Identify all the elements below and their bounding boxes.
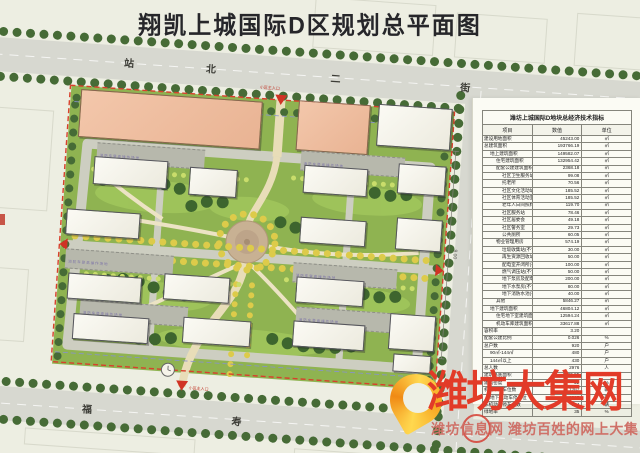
table-row: 社区体育活动室185.52㎡: [483, 195, 632, 202]
row-item: 地下泵房及配电站(不计容): [483, 276, 533, 283]
row-value: 60.05: [532, 232, 582, 239]
table-row: 老年人日间照料中心119.70㎡: [483, 202, 632, 209]
row-item: 建设用地面积: [483, 136, 533, 143]
row-value: 200.00: [532, 276, 582, 283]
building: [392, 353, 431, 374]
row-unit: ㎡: [582, 298, 632, 305]
row-value: 100.00: [532, 261, 582, 268]
row-item: 地下消防水池(不计容): [483, 291, 533, 298]
row-item: 物业管理用房: [483, 239, 533, 246]
row-value: 50.00: [532, 269, 582, 276]
row-unit: ㎡: [582, 276, 632, 283]
red-edge-mark: [0, 214, 5, 225]
row-value: 185.52: [532, 187, 582, 194]
row-item: 地下建筑面积: [483, 305, 533, 312]
row-unit: ㎡: [582, 313, 632, 320]
building: [303, 165, 369, 197]
table-row: 社区文化活动站185.52㎡: [483, 187, 632, 194]
row-unit: ㎡: [582, 202, 632, 209]
row-value: 50.00: [532, 254, 582, 261]
row-value: 5846.27: [532, 298, 582, 305]
street-name-char: 北: [206, 60, 217, 76]
table-title: 潍坊上城国际D地块总经济技术指标: [483, 111, 632, 125]
row-value: 29.73: [532, 224, 582, 231]
row-item: 老年人日间照料中心: [483, 202, 533, 209]
row-unit: ㎡: [582, 239, 632, 246]
indicator-table-head: 潍坊上城国际D地块总经济技术指标 项目 数值 单位: [483, 111, 632, 136]
building: [188, 167, 238, 198]
table-row: 垃圾收集站(不计容)30.00㎡: [483, 246, 632, 253]
street-name-char: 寿: [231, 413, 242, 429]
street-name-char: 站: [124, 54, 135, 70]
row-unit: ㎡: [582, 172, 632, 179]
building: [65, 208, 141, 239]
row-unit: ㎡: [582, 254, 632, 261]
street-name-char: 二: [330, 70, 341, 86]
row-unit: ㎡: [582, 136, 632, 143]
table-row: 容积率3.20: [483, 328, 632, 335]
row-unit: ㎡: [582, 165, 632, 172]
building: [163, 273, 231, 304]
table-row: 再生资源回收站(不计容)50.00㎡: [483, 254, 632, 261]
table-row: 燃气调压站(不计容)50.00㎡: [483, 269, 632, 276]
entry-axis-path: [277, 99, 281, 157]
row-item: 住宅地下室建筑面积: [483, 313, 533, 320]
table-row: 144㎡以上430户: [483, 357, 632, 364]
row-item: 144㎡以上: [483, 357, 533, 364]
row-item: 总户数: [483, 342, 533, 349]
row-unit: ㎡: [582, 150, 632, 157]
table-row: 公共厕所60.05㎡: [483, 232, 632, 239]
table-row: 托老所70.56㎡: [483, 180, 632, 187]
street-name-char: 福: [81, 400, 92, 416]
row-unit: ㎡: [582, 320, 632, 327]
dimension-text: 9.00: [451, 249, 458, 259]
row-value: 12594.24: [532, 313, 582, 320]
row-item: 托老所: [483, 180, 533, 187]
row-item: 社区服务站: [483, 209, 533, 216]
entrance-label: 小区主入口: [260, 84, 280, 91]
row-unit: 户: [582, 342, 632, 349]
row-item: 社区体育活动室: [483, 195, 533, 202]
table-row: 社区居委会49.18㎡: [483, 217, 632, 224]
row-unit: ㎡: [582, 305, 632, 312]
row-value: 0.026: [532, 335, 582, 342]
row-item: 总建筑面积: [483, 143, 533, 150]
row-item: 地下水泵房(不计容): [483, 283, 533, 290]
building: [292, 320, 366, 351]
row-value: 430: [532, 357, 582, 364]
row-unit: [582, 328, 632, 335]
building: [295, 276, 365, 307]
row-unit: ㎡: [582, 269, 632, 276]
building: [182, 317, 252, 348]
pink-building: [296, 100, 371, 155]
row-unit: ㎡: [582, 261, 632, 268]
table-header-row: 项目 数值 单位: [483, 125, 632, 136]
fire-lane-label: 消防车登高操作场地: [65, 259, 109, 266]
table-row: 配电室开闭所(不计容)100.00㎡: [483, 261, 632, 268]
table-row: 社区服务站78.46㎡: [483, 209, 632, 216]
row-value: 119.70: [532, 202, 582, 209]
table-row: 住宅建筑面积132954.42㎡: [483, 158, 632, 165]
row-value: 30.00: [532, 246, 582, 253]
row-value: 480: [532, 350, 582, 357]
row-unit: 户: [582, 357, 632, 364]
table-row: 地下水泵房(不计容)80.00㎡: [483, 283, 632, 290]
table-row: 总建筑面积193766.19㎡: [483, 143, 632, 150]
row-value: 45243.00: [532, 136, 582, 143]
row-item: 社区文化活动站: [483, 187, 533, 194]
table-row: 地上建筑面积149582.07㎡: [483, 150, 632, 157]
row-item: 社区居委会: [483, 217, 533, 224]
table-title-row: 潍坊上城国际D地块总经济技术指标: [483, 111, 632, 125]
row-value: 80.00: [532, 283, 582, 290]
row-item: 容积率: [483, 328, 533, 335]
table-row: 社区警务室29.73㎡: [483, 224, 632, 231]
page-title: 翔凯上城国际D区规划总平面图: [120, 5, 500, 40]
row-item: 机动车库建筑面积: [483, 320, 533, 327]
row-item: 地上建筑面积: [483, 150, 533, 157]
row-item: 垃圾收集站(不计容): [483, 246, 533, 253]
row-unit: %: [582, 335, 632, 342]
table-row: 地下消防水池(不计容)40.00㎡: [483, 291, 632, 298]
row-value: 920: [532, 342, 582, 349]
row-unit: ㎡: [582, 195, 632, 202]
row-unit: ㎡: [582, 246, 632, 253]
row-unit: ㎡: [582, 291, 632, 298]
row-unit: ㎡: [582, 180, 632, 187]
row-item: 再生资源回收站(不计容): [483, 254, 533, 261]
building: [93, 156, 169, 189]
row-value: 78.46: [532, 209, 582, 216]
row-value: 46804.12: [532, 305, 582, 312]
table-row: 住宅地下室建筑面积12594.24㎡: [483, 313, 632, 320]
building: [376, 104, 453, 151]
row-value: 185.52: [532, 195, 582, 202]
row-unit: ㎡: [582, 217, 632, 224]
building: [388, 313, 436, 352]
row-item: 配套公建比例: [483, 335, 533, 342]
row-value: 132954.42: [532, 158, 582, 165]
table-row: 地下建筑面积46804.12㎡: [483, 305, 632, 312]
row-value: 99.08: [532, 172, 582, 179]
building: [67, 273, 143, 304]
row-value: 40.00: [532, 291, 582, 298]
street-name-char: 街: [460, 79, 471, 95]
row-item: 其他: [483, 298, 533, 305]
row-item: 社区卫生服务站: [483, 172, 533, 179]
row-unit: ㎡: [582, 224, 632, 231]
row-item: 社区警务室: [483, 224, 533, 231]
table-row: 配套公建建筑面积2368.18㎡: [483, 165, 632, 172]
table-row: 总户数920户: [483, 342, 632, 349]
row-value: 49.18: [532, 217, 582, 224]
table-row: 物业管理用房574.19㎡: [483, 239, 632, 246]
table-row: 社区卫生服务站99.08㎡: [483, 172, 632, 179]
row-item: 公共厕所: [483, 232, 533, 239]
building: [72, 313, 150, 344]
watermark-tagline: 潍坊信息网 潍坊百姓的网上大集: [431, 419, 638, 439]
table-row: 地下泵房及配电站(不计容)200.00㎡: [483, 276, 632, 283]
row-unit: ㎡: [582, 158, 632, 165]
table-row: 其他5846.27㎡: [483, 298, 632, 305]
indicator-sheet: 潍坊上城国际D地块总经济技术指标 项目 数值 单位 建设用地面积45243.00…: [472, 98, 640, 404]
row-value: 70.56: [532, 180, 582, 187]
col-item: 项目: [483, 125, 533, 136]
row-item: 配套公建建筑面积: [483, 165, 533, 172]
row-item: 燃气调压站(不计容): [483, 269, 533, 276]
row-unit: 户: [582, 350, 632, 357]
table-row: 90㎡-144㎡480户: [483, 350, 632, 357]
building: [299, 217, 367, 248]
watermark-brand: 潍坊大集网: [427, 371, 622, 414]
row-item: 住宅建筑面积: [483, 158, 533, 165]
table-row: 配套公建比例0.026%: [483, 335, 632, 342]
col-unit: 单位: [582, 125, 632, 136]
building: [397, 163, 447, 196]
row-value: 2368.18: [532, 165, 582, 172]
row-value: 3.20: [532, 328, 582, 335]
building: [395, 217, 443, 252]
row-item: 配电室开闭所(不计容): [483, 261, 533, 268]
row-item: 90㎡-144㎡: [483, 350, 533, 357]
row-value: 193766.19: [532, 143, 582, 150]
row-value: 149582.07: [532, 150, 582, 157]
table-row: 机动车库建筑面积33617.88㎡: [483, 320, 632, 327]
row-value: 33617.88: [532, 320, 582, 327]
col-value: 数值: [532, 125, 582, 136]
row-value: 574.19: [532, 239, 582, 246]
row-unit: ㎡: [582, 283, 632, 290]
row-unit: ㎡: [582, 187, 632, 194]
row-unit: ㎡: [582, 143, 632, 150]
table-row: 建设用地面积45243.00㎡: [483, 136, 632, 143]
plan-sheet: 9.00 消防车登高操作场地 消防车登高操作场地 消防车登高操作场地 消防车登高…: [0, 0, 640, 453]
row-unit: ㎡: [582, 232, 632, 239]
row-unit: ㎡: [582, 209, 632, 216]
